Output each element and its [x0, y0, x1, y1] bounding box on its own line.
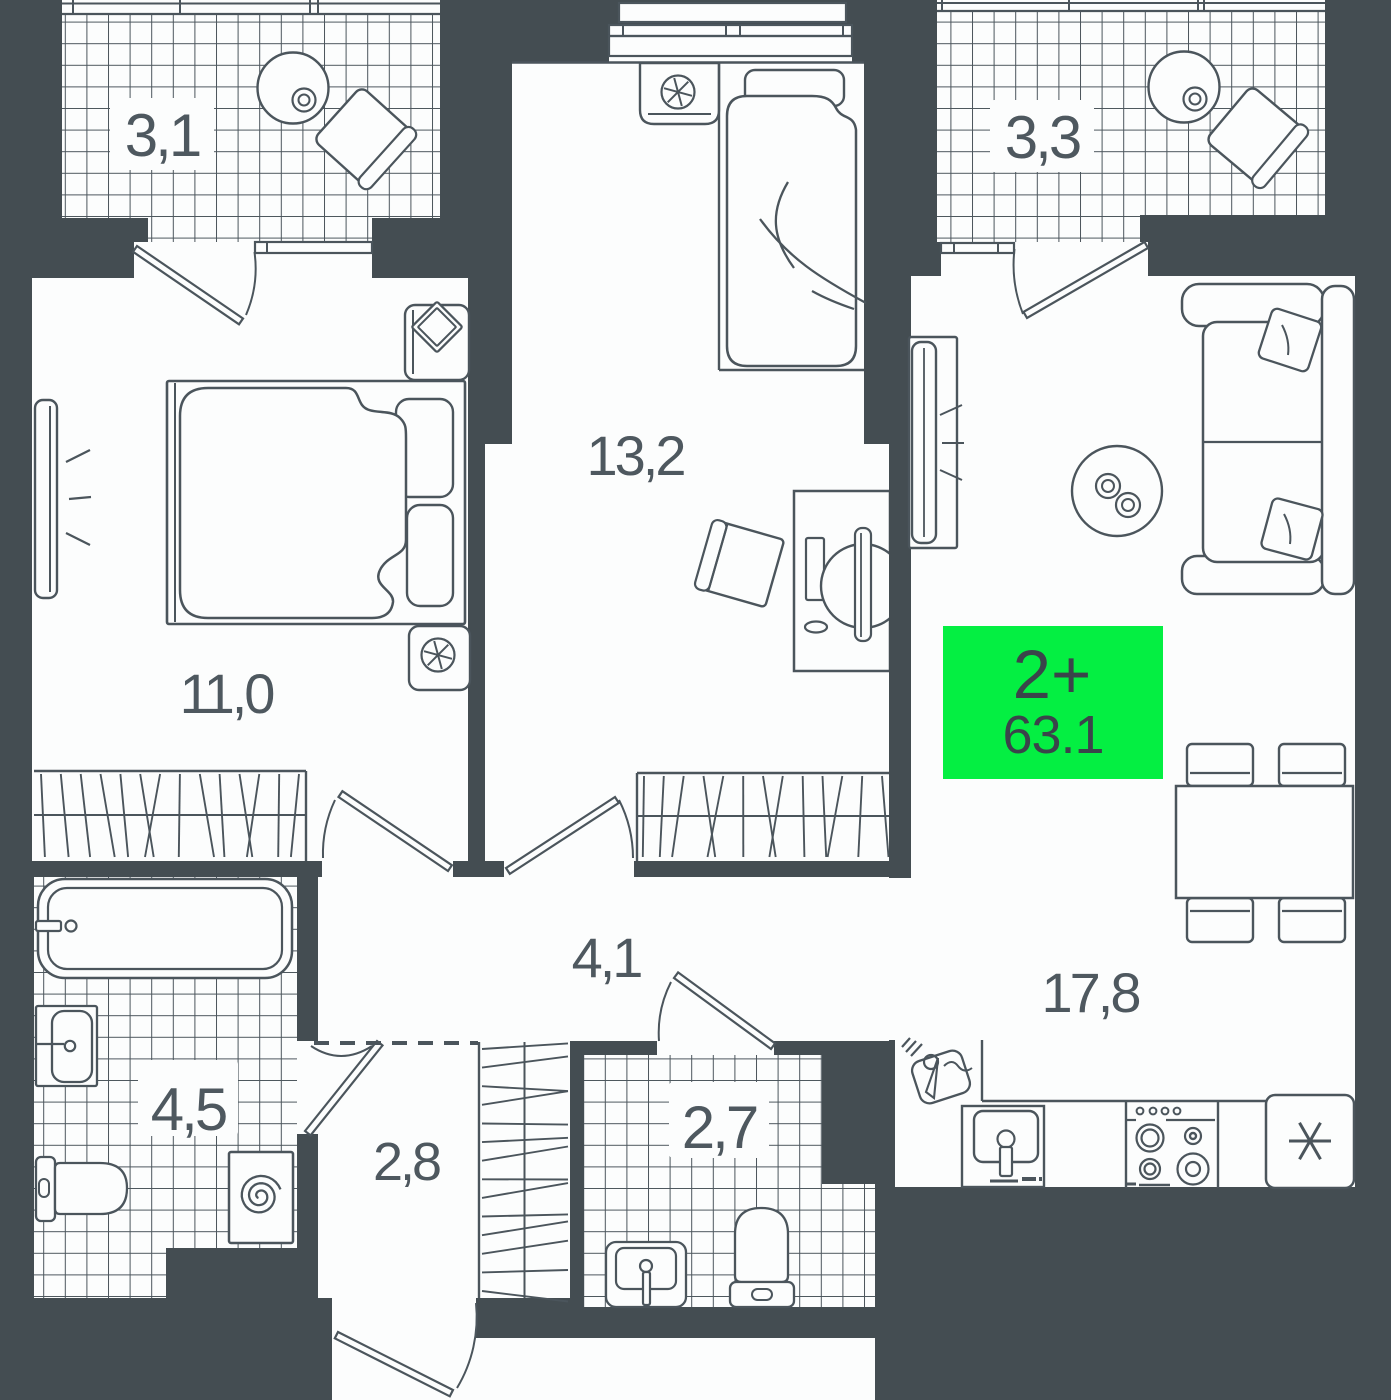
svg-text:13,2: 13,2 [587, 424, 685, 487]
svg-text:63.1: 63.1 [1002, 705, 1103, 765]
svg-text:4,1: 4,1 [572, 926, 642, 989]
svg-text:2+: 2+ [1013, 636, 1092, 713]
svg-text:17,8: 17,8 [1042, 961, 1140, 1024]
svg-text:2,7: 2,7 [682, 1094, 757, 1161]
svg-text:3,1: 3,1 [125, 102, 200, 169]
svg-text:11,0: 11,0 [180, 662, 274, 725]
svg-text:2,8: 2,8 [373, 1132, 440, 1192]
svg-text:4,5: 4,5 [151, 1076, 226, 1143]
svg-text:3,3: 3,3 [1005, 104, 1080, 171]
